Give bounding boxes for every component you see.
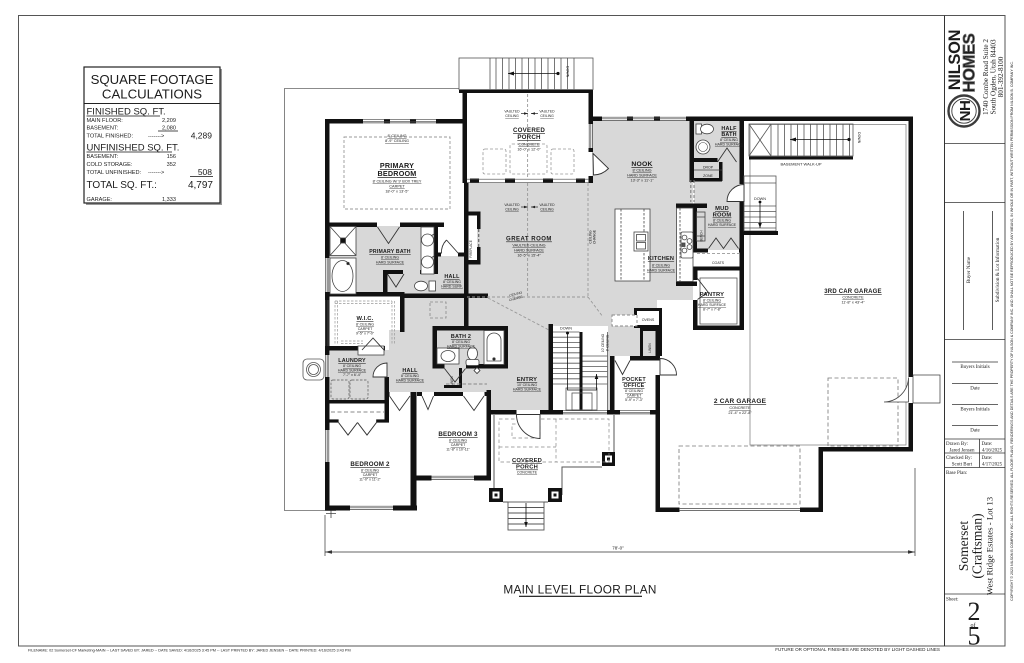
svg-text:CALCULATIONS: CALCULATIONS [102, 87, 202, 102]
svg-text:Drawn By:: Drawn By: [946, 442, 968, 447]
svg-text:Date:: Date: [982, 442, 993, 447]
svg-text:4/17/2025: 4/17/2025 [982, 463, 1003, 468]
svg-text:8' CEILING W/ 9' BOX TREY: 8' CEILING W/ 9' BOX TREY [373, 180, 422, 184]
svg-text:MAIN FLOOR:: MAIN FLOOR: [87, 118, 124, 124]
svg-text:(Craftsman): (Craftsman) [970, 513, 985, 578]
svg-text:10' CEILING: 10' CEILING [601, 333, 605, 352]
svg-text:DOWN: DOWN [566, 66, 570, 78]
svg-text:2,209: 2,209 [162, 118, 176, 124]
svg-text:W.I.C.: W.I.C. [357, 316, 374, 322]
svg-text:SQUARE FOOTAGE: SQUARE FOOTAGE [91, 72, 214, 87]
svg-text:5: 5 [968, 622, 981, 651]
svg-text:Subdivision & Lot Information: Subdivision & Lot Information [994, 237, 1001, 302]
svg-text:8' CEILING: 8' CEILING [449, 439, 467, 443]
svg-text:COPYRIGHT © 2023 NILSON B CO: COPYRIGHT © 2023 NILSON B COMPANY INC. A… [1010, 61, 1014, 601]
svg-text:CONCRETE: CONCRETE [729, 406, 751, 410]
svg-text:HOMES: HOMES [961, 33, 979, 92]
svg-text:1,333: 1,333 [162, 197, 176, 203]
svg-text:------->: -------> [148, 133, 164, 139]
svg-text:HARD SURFACE: HARD SURFACE [647, 269, 676, 273]
svg-text:BEDROOM 2: BEDROOM 2 [350, 461, 390, 468]
svg-text:CONCRETE: CONCRETE [517, 471, 538, 475]
svg-text:8' CEILING: 8' CEILING [401, 374, 419, 378]
svg-text:HARD SURFACE: HARD SURFACE [715, 143, 744, 147]
svg-text:4/16/2025: 4/16/2025 [982, 449, 1003, 454]
svg-text:CARPET: CARPET [363, 473, 378, 477]
svg-text:CONCRETE: CONCRETE [518, 143, 540, 147]
svg-text:Sheet:: Sheet: [946, 598, 959, 603]
svg-text:BEDROOM: BEDROOM [378, 169, 417, 178]
svg-text:BASEMENT:: BASEMENT: [87, 154, 119, 160]
svg-text:Jared Jensen: Jared Jensen [949, 449, 975, 454]
svg-text:VAULTED: VAULTED [539, 203, 555, 207]
svg-text:18'-0" x 13'-5": 18'-0" x 13'-5" [385, 190, 409, 194]
svg-text:21'-4" x 22'-8": 21'-4" x 22'-8" [728, 411, 752, 415]
svg-text:4,797: 4,797 [188, 180, 213, 191]
svg-text:HARD SURFACE: HARD SURFACE [627, 174, 657, 178]
svg-text:CARPET: CARPET [627, 394, 642, 398]
svg-text:HARD SURFACE: HARD SURFACE [396, 379, 425, 383]
svg-text:CEILING: CEILING [505, 208, 519, 212]
svg-text:16'-0" x 12'-0": 16'-0" x 12'-0" [517, 148, 541, 152]
svg-text:TOTAL UNFINISHED:: TOTAL UNFINISHED: [87, 170, 142, 176]
svg-text:------->: -------> [148, 170, 164, 176]
svg-text:CARPET: CARPET [358, 327, 373, 331]
svg-text:COVERED: COVERED [512, 458, 542, 464]
svg-text:16'-5" x 15'-4": 16'-5" x 15'-4" [517, 254, 541, 258]
svg-text:8' CEILING: 8' CEILING [606, 334, 610, 351]
svg-text:GREAT ROOM: GREAT ROOM [506, 237, 552, 243]
svg-text:8' CEILING: 8' CEILING [387, 134, 406, 138]
svg-text:Buyer Name: Buyer Name [966, 256, 972, 283]
svg-text:8' CEILING: 8' CEILING [652, 264, 670, 268]
svg-text:CONCRETE: CONCRETE [842, 296, 864, 300]
svg-text:8' CEILING: 8' CEILING [356, 323, 374, 327]
svg-text:Checked By:: Checked By: [946, 456, 972, 461]
svg-text:TOTAL FINISHED:: TOTAL FINISHED: [87, 133, 134, 139]
svg-text:MAIN LEVEL FLOOR PLAN: MAIN LEVEL FLOOR PLAN [503, 583, 656, 597]
svg-text:CARPET: CARPET [389, 185, 405, 189]
svg-text:5'-9" x 7'-3": 5'-9" x 7'-3" [625, 398, 644, 402]
svg-text:8' CEILING: 8' CEILING [381, 256, 399, 260]
svg-text:West Ridge Estates - Lot 13: West Ridge Estates - Lot 13 [985, 496, 995, 595]
svg-text:Base Plan:: Base Plan: [946, 471, 967, 476]
svg-text:COLD STORAGE:: COLD STORAGE: [87, 162, 133, 168]
svg-text:156: 156 [167, 154, 176, 160]
svg-text:TOTAL SQ. FT.:: TOTAL SQ. FT.: [87, 180, 157, 191]
svg-text:Date: Date [970, 387, 980, 392]
svg-text:HARD SURFACE: HARD SURFACE [447, 345, 476, 349]
svg-text:8' CEILING: 8' CEILING [343, 364, 361, 368]
svg-text:8' CEILING: 8' CEILING [720, 138, 738, 142]
svg-text:8' CEILING: 8' CEILING [632, 169, 651, 173]
svg-text:8' CEILING: 8' CEILING [452, 340, 470, 344]
svg-text:ZONE: ZONE [703, 174, 713, 178]
svg-text:BENCH: BENCH [700, 230, 704, 242]
svg-text:CEILING: CEILING [505, 114, 519, 118]
svg-text:Buyers Initials: Buyers Initials [960, 408, 989, 413]
svg-text:DOWN: DOWN [857, 132, 861, 144]
svg-text:VAULTED CEILING: VAULTED CEILING [512, 244, 545, 248]
svg-text:VAULTED: VAULTED [504, 110, 520, 114]
svg-text:LINEN: LINEN [648, 343, 652, 353]
svg-text:8' CEILING: 8' CEILING [443, 280, 461, 284]
svg-text:10' CEILING: 10' CEILING [517, 383, 537, 387]
svg-text:GARAGE:: GARAGE: [87, 197, 113, 203]
svg-text:BASEMENT:: BASEMENT: [87, 126, 119, 132]
svg-text:HARD SURFACE: HARD SURFACE [708, 223, 737, 227]
svg-text:OVENS: OVENS [642, 318, 655, 322]
svg-text:MUD: MUD [715, 206, 729, 212]
svg-text:Date: Date [970, 429, 980, 434]
svg-text:DOWN: DOWN [754, 197, 766, 201]
svg-text:3RD CAR GARAGE: 3RD CAR GARAGE [824, 289, 881, 295]
svg-text:7'-7" x 6'-4": 7'-7" x 6'-4" [343, 373, 362, 377]
svg-text:PORCH: PORCH [517, 134, 541, 141]
svg-text:8' CEILING: 8' CEILING [703, 299, 721, 303]
svg-text:BASEMENT WALK-UP: BASEMENT WALK-UP [780, 162, 821, 167]
svg-text:Scott Burt: Scott Burt [952, 463, 973, 468]
svg-text:11'-8" x 43'-4": 11'-8" x 43'-4" [841, 301, 865, 305]
svg-text:508: 508 [198, 167, 212, 177]
svg-text:8' CEILING: 8' CEILING [625, 389, 643, 393]
svg-text:CHANGE: CHANGE [593, 229, 597, 244]
svg-text:78'-0": 78'-0" [612, 546, 624, 551]
svg-text:NH: NH [957, 101, 974, 122]
svg-text:8' CEILING: 8' CEILING [361, 469, 379, 473]
svg-text:DROP: DROP [703, 166, 714, 170]
svg-text:CEILING: CEILING [540, 114, 554, 118]
svg-text:9'-5" x 7'-0": 9'-5" x 7'-0" [356, 332, 375, 336]
svg-text:VAULTED: VAULTED [504, 203, 520, 207]
svg-text:NOOK: NOOK [631, 161, 652, 168]
svg-text:CARPET: CARPET [451, 443, 466, 447]
svg-text:LINEN: LINEN [450, 376, 454, 386]
svg-text:BEDROOM 3: BEDROOM 3 [438, 431, 478, 438]
svg-text:COVERED: COVERED [513, 127, 545, 134]
svg-text:Date:: Date: [982, 456, 993, 461]
svg-text:FILENAME: 02 Somerset-CF Mark: FILENAME: 02 Somerset-CF Marketing-MAIN … [28, 649, 351, 653]
svg-text:HARD SURFACE: HARD SURFACE [338, 369, 367, 373]
svg-text:VAULTED: VAULTED [539, 110, 555, 114]
svg-text:2 CAR GARAGE: 2 CAR GARAGE [714, 398, 767, 405]
svg-text:CEILING: CEILING [540, 208, 554, 212]
svg-text:Buyers Initials: Buyers Initials [960, 365, 989, 370]
svg-text:DOWN: DOWN [560, 327, 572, 331]
svg-text:KITCHEN: KITCHEN [648, 256, 674, 262]
svg-text:8'-9" CEILING: 8'-9" CEILING [385, 139, 409, 143]
svg-text:11'-8" x 10'-11": 11'-8" x 10'-11" [446, 448, 470, 452]
svg-text:FUTURE OR OPTIONAL FINISHES AR: FUTURE OR OPTIONAL FINISHES ARE DENOTED … [775, 647, 940, 652]
svg-text:HARD SURFACE: HARD SURFACE [698, 303, 727, 307]
svg-text:8' CEILING: 8' CEILING [713, 219, 731, 223]
svg-text:8'-7" x 7'-8": 8'-7" x 7'-8" [703, 308, 722, 312]
svg-text:HARD SURF.: HARD SURF. [441, 285, 463, 289]
svg-text:PANTRY: PANTRY [700, 292, 724, 298]
svg-text:HARD SURFACE: HARD SURFACE [513, 388, 542, 392]
svg-text:13'-3" x 11'-1": 13'-3" x 11'-1" [630, 179, 654, 183]
svg-text:PRIMARY BATH: PRIMARY BATH [369, 249, 411, 255]
svg-text:11'-0" x 11'-2": 11'-0" x 11'-2" [359, 478, 381, 482]
svg-text:FIREPLACE: FIREPLACE [469, 240, 473, 258]
svg-text:352: 352 [167, 162, 176, 168]
svg-text:801-392-8100: 801-392-8100 [997, 56, 1005, 97]
svg-text:HARD SURFACE: HARD SURFACE [376, 261, 405, 265]
svg-text:HARD SURFACE: HARD SURFACE [514, 249, 544, 253]
svg-text:4,289: 4,289 [191, 131, 213, 141]
svg-text:COATS: COATS [712, 261, 725, 265]
